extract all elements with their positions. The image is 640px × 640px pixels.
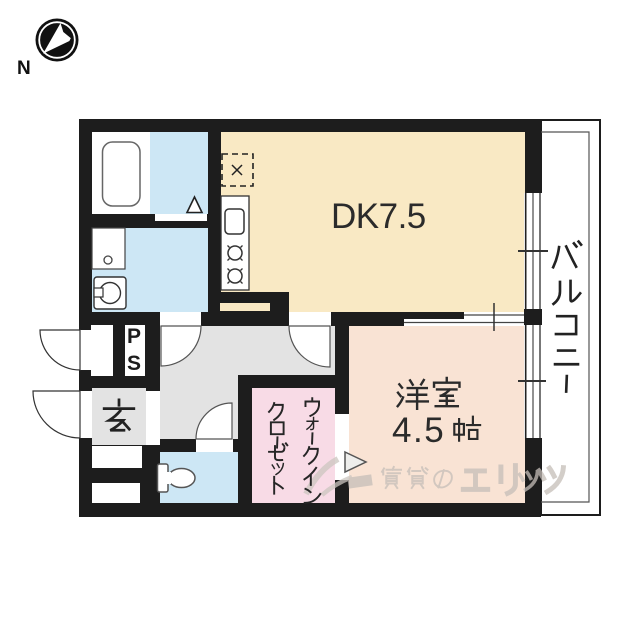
svg-text:DK7.5: DK7.5 [331, 197, 426, 236]
svg-text:4.5: 4.5 [392, 411, 445, 450]
svg-text:N: N [17, 58, 31, 79]
svg-text:S: S [127, 352, 141, 375]
svg-text:P: P [127, 325, 141, 348]
